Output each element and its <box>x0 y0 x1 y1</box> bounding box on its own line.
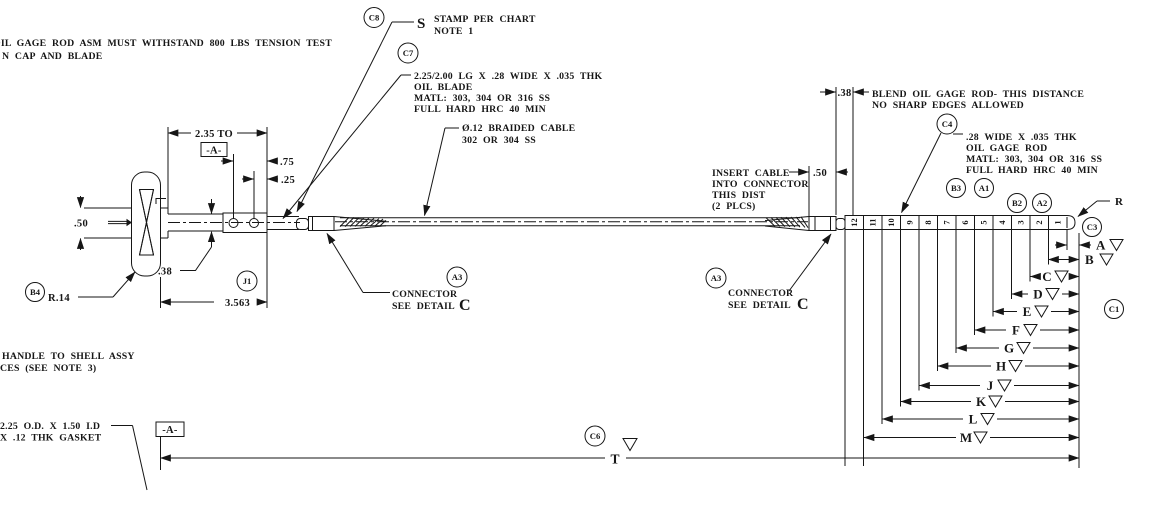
flag-triangle <box>1024 325 1037 336</box>
connector-right: A3 CONNECTOR SEE DETAIL C <box>706 217 845 314</box>
rod-station-number: 1 <box>1052 220 1062 224</box>
flag-triangle <box>989 396 1002 407</box>
flag-triangle <box>998 380 1011 391</box>
station-letter: B <box>1085 252 1094 267</box>
datum-a-label: -A- <box>206 146 222 157</box>
leader-line <box>327 234 363 293</box>
note-line: X .12 THK GASKET <box>0 433 102 444</box>
station-letter: A <box>1096 238 1106 253</box>
tension-test-note: OIL GAGE ROD ASM MUST WITHSTAND 800 LBS … <box>0 38 332 62</box>
balloon-b4-label: B4 <box>30 287 41 297</box>
rod-station-number: 11 <box>867 218 877 226</box>
station-dim-f: F <box>975 323 1079 338</box>
dim-r14: R.14 <box>48 293 70 304</box>
connector-left: A3 CONNECTOR SEE DETAIL C <box>297 217 471 315</box>
note-line: INTO CONNECTOR <box>712 179 809 190</box>
station-letter: J <box>987 378 994 393</box>
leader-line <box>902 133 942 213</box>
note-line: HANDLE TO SHELL ASSY <box>2 351 135 362</box>
note-line: NO SHARP EDGES ALLOWED <box>872 100 1024 111</box>
note-line: (2 PLCS) <box>712 201 756 212</box>
flag-triangle <box>1035 306 1048 317</box>
overall-length-dimension: -A- C6 T <box>156 422 1079 470</box>
balloon-a2-label: A2 <box>1037 198 1048 208</box>
leader-line <box>425 128 446 216</box>
dim-75: .75 <box>280 157 294 168</box>
note-line: 2.25/2.00 LG X .28 WIDE X .035 THK <box>414 71 602 82</box>
note-line: Ø.12 BRAIDED CABLE <box>462 123 576 134</box>
leader-line <box>789 234 831 291</box>
station-letter: L <box>969 412 978 427</box>
note-line: FULL HARD HRC 40 MIN <box>414 104 546 115</box>
note-line: BLEND OIL GAGE ROD- THIS DISTANCE <box>872 89 1084 100</box>
balloon-c8-label: C8 <box>369 13 380 23</box>
note-line: STAMP PER CHART <box>434 14 536 25</box>
gasket-note: 2.25 O.D. X 1.50 I.D X .12 THK GASKET <box>0 421 147 490</box>
leader-line <box>113 272 135 297</box>
station-letter: K <box>976 394 987 409</box>
leader-line <box>1078 201 1097 217</box>
station-dim-a: A <box>1055 238 1123 253</box>
handle-section-mark <box>140 190 154 223</box>
flag-triangle <box>1046 289 1059 300</box>
connector-taper <box>765 226 809 231</box>
note-line: MATL: 303, 304 OR 316 SS <box>414 93 550 104</box>
detail-letter: C <box>459 297 471 314</box>
balloon-a3-right-label: A3 <box>711 273 722 283</box>
station-dim-l: L <box>883 412 1080 427</box>
engineering-drawing-sheet: OIL GAGE ROD ASM MUST WITHSTAND 800 LBS … <box>0 0 1162 512</box>
rod-station-number: 10 <box>886 218 896 227</box>
braided-cable-callout: Ø.12 BRAIDED CABLE 302 OR 304 SS <box>425 123 576 216</box>
station-letter: G <box>1004 341 1014 356</box>
handle-note: HANDLE TO SHELL ASSY CES (SEE NOTE 3) <box>0 351 135 374</box>
note-line: SEE DETAIL <box>392 301 455 312</box>
connector-taper <box>334 226 386 231</box>
note-line: THIS DIST <box>712 190 766 201</box>
stamp-s: S <box>417 16 425 32</box>
note-line: MATL: 303, 304 OR 316 SS <box>966 154 1102 165</box>
station-dim-g: G <box>957 341 1080 356</box>
rod-station-number: 5 <box>978 220 988 224</box>
balloon-b3-label: B3 <box>951 183 961 193</box>
station-letter: H <box>996 359 1006 374</box>
balloon-c1-label: C1 <box>1109 304 1120 314</box>
station-letter: M <box>960 430 972 445</box>
station-dim-h: H <box>938 359 1079 374</box>
radius-label: R <box>1115 196 1124 208</box>
connector-cap <box>836 219 845 230</box>
flag-triangle <box>623 439 637 451</box>
station-dim-b: B <box>1049 252 1114 267</box>
note-line: OIL GAGE ROD ASM MUST WITHSTAND 800 LBS … <box>0 38 332 49</box>
note-line: OIL GAGE ROD <box>966 143 1047 154</box>
leader-line <box>283 75 401 219</box>
station-letter: E <box>1023 304 1032 319</box>
flag-triangle <box>1100 254 1113 265</box>
connector-body <box>809 217 836 231</box>
leader-line <box>180 247 212 271</box>
station-dim-j: J <box>920 378 1080 393</box>
station-letter: F <box>1012 323 1020 338</box>
dim-235: 2.35 TO <box>195 129 233 140</box>
oil-gage-rod-callout: C4 .28 WIDE X .035 THK OIL GAGE ROD MATL… <box>902 114 1103 213</box>
dim-38-left: .38 <box>158 267 172 278</box>
note-line: OIL BLADE <box>414 82 473 93</box>
note-line: 2.25 O.D. X 1.50 I.D <box>0 421 100 432</box>
handle-assembly <box>84 172 300 276</box>
rod-station-number: 6 <box>960 220 970 224</box>
station-dim-k: K <box>901 394 1079 409</box>
detail-letter: C <box>797 296 809 313</box>
braided-cable <box>335 218 808 226</box>
rod-station-number: 3 <box>1015 220 1025 224</box>
station-dim-e: E <box>994 304 1080 319</box>
note-line: .28 WIDE X .035 THK <box>966 132 1077 143</box>
rod-station-number: 12 <box>849 218 859 227</box>
leader-line <box>133 426 148 491</box>
dim-t: T <box>610 452 619 467</box>
note-line: CES (SEE NOTE 3) <box>0 363 96 374</box>
note-line: INSERT CABLE <box>712 168 790 179</box>
handle-section-mark <box>140 223 154 256</box>
balloon-a1-label: A1 <box>979 183 990 193</box>
datum-a-label: -A- <box>162 425 178 436</box>
flag-triangle <box>1017 343 1030 354</box>
flag-triangle <box>1110 240 1123 251</box>
gage-rod: 12 11 10 9 8 7 6 5 4 3 2 1 C3 C1 R <box>845 196 1124 319</box>
balloon-c3-label: C3 <box>1087 222 1098 232</box>
rod-station-number: 4 <box>997 220 1007 225</box>
rod-station-number: 9 <box>904 220 914 224</box>
connector-cap <box>297 219 309 230</box>
dim-25: .25 <box>281 175 295 186</box>
note-line: CONNECTOR <box>728 288 794 299</box>
balloon-c4-label: C4 <box>942 119 953 129</box>
leader-line <box>297 22 392 212</box>
rod-station-number: 8 <box>923 220 933 224</box>
rod-station-number: 7 <box>941 220 951 225</box>
station-dim-m: M <box>864 430 1079 445</box>
balloon-a3-left-label: A3 <box>452 272 463 282</box>
dim-3563: 3.563 <box>225 298 250 309</box>
note-line: 302 OR 304 SS <box>462 135 536 146</box>
note-line: NOTE 1 <box>434 26 473 37</box>
flag-triangle <box>1009 361 1022 372</box>
insert-cable-callout: INSERT CABLE INTO CONNECTOR THIS DIST (2… <box>712 166 848 216</box>
balloon-c7-label: C7 <box>403 48 414 58</box>
note-line: FULL HARD HRC 40 MIN <box>966 165 1098 176</box>
dim-50-left: .50 <box>74 219 88 230</box>
balloon-j1-label: J1 <box>243 276 252 286</box>
flag-triangle <box>974 432 987 443</box>
dim-38-right: .38 <box>837 88 851 99</box>
note-line: N CAP AND BLADE <box>2 51 103 62</box>
balloon-c6-label: C6 <box>590 431 601 441</box>
note-line: SEE DETAIL <box>728 300 791 311</box>
oil-gage-rod-drawing: OIL GAGE ROD ASM MUST WITHSTAND 800 LBS … <box>0 0 1162 512</box>
rod-station-number: 2 <box>1034 220 1044 224</box>
flag-triangle <box>981 414 994 425</box>
note-line: CONNECTOR <box>392 289 458 300</box>
station-letter: C <box>1042 269 1051 284</box>
balloon-b2-label: B2 <box>1012 198 1022 208</box>
dim-50-right: .50 <box>813 168 827 179</box>
station-letter: D <box>1033 287 1042 302</box>
station-dim-c: C <box>1031 269 1080 284</box>
flag-triangle <box>1055 271 1068 282</box>
station-dim-d: D <box>1012 287 1079 302</box>
